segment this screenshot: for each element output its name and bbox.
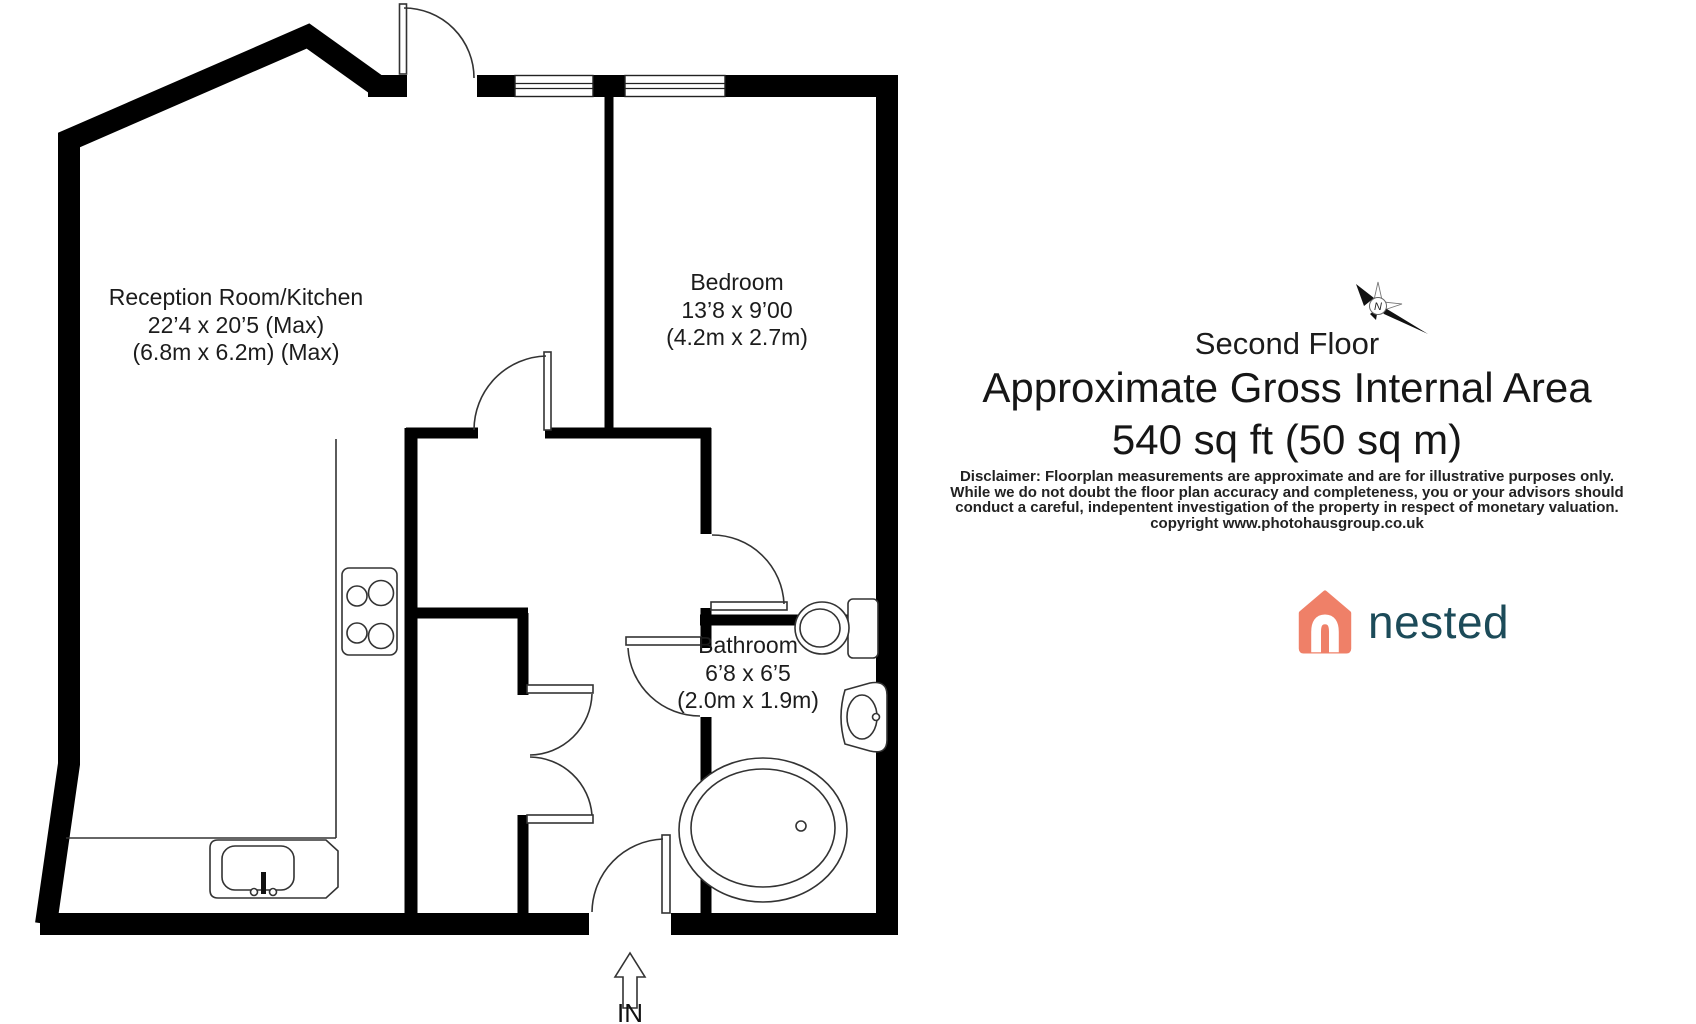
disclaimer-line: While we do not doubt the floor plan acc… — [880, 485, 1694, 501]
area-value: 540 sq ft (50 sq m) — [880, 416, 1694, 464]
window-bedroom — [625, 74, 725, 98]
disclaimer-line: Disclaimer: Floorplan measurements are a… — [880, 469, 1694, 485]
window-reception — [515, 74, 593, 98]
compass-north-label: N — [1374, 301, 1382, 313]
reception-room-size: 22’4 x 20’5 (Max) — [148, 312, 324, 338]
bathroom-size: 6’8 x 6’5 — [705, 660, 791, 686]
kitchen-counter — [66, 439, 336, 838]
wall-left-and-diagonals — [46, 36, 378, 924]
entrance-door — [592, 835, 670, 913]
disclaimer-line: conduct a careful, indepentent investiga… — [880, 500, 1694, 516]
floorplan-page: Reception Room/Kitchen 22’4 x 20’5 (Max)… — [0, 0, 1696, 1024]
entrance-label: IN — [617, 998, 643, 1024]
disclaimer: Disclaimer: Floorplan measurements are a… — [880, 469, 1694, 531]
bathroom-size-metric: (2.0m x 1.9m) — [677, 687, 819, 713]
hob — [342, 568, 397, 655]
bedroom-size-metric: (4.2m x 2.7m) — [666, 324, 808, 350]
floor-name: Second Floor — [880, 326, 1694, 362]
reception-door — [474, 352, 551, 430]
toilet — [795, 599, 878, 658]
entrance-opening — [589, 910, 671, 939]
nested-logo: nested — [1298, 590, 1509, 654]
disclaimer-line: copyright www.photohausgroup.co.uk — [880, 516, 1694, 532]
bathroom-name: Bathroom — [698, 632, 798, 658]
nested-logo-text: nested — [1368, 595, 1509, 649]
bathroom-sink — [841, 683, 887, 752]
bedroom-door — [711, 535, 787, 610]
wall-openings — [407, 72, 725, 939]
closet-double-doors — [527, 685, 593, 823]
kitchen-sink — [210, 840, 338, 898]
bedroom-size: 13’8 x 9’00 — [681, 297, 792, 323]
top-terrace-door — [400, 4, 475, 78]
top-door-opening — [407, 72, 477, 100]
reception-room-size-metric: (6.8m x 6.2m) (Max) — [132, 339, 339, 365]
bedroom-name: Bedroom — [690, 269, 783, 295]
reception-room-name: Reception Room/Kitchen — [109, 284, 363, 310]
entrance-marker: IN — [615, 953, 645, 1024]
area-heading: Approximate Gross Internal Area — [880, 364, 1694, 412]
nested-house-icon — [1301, 593, 1349, 653]
bathtub — [679, 758, 847, 902]
